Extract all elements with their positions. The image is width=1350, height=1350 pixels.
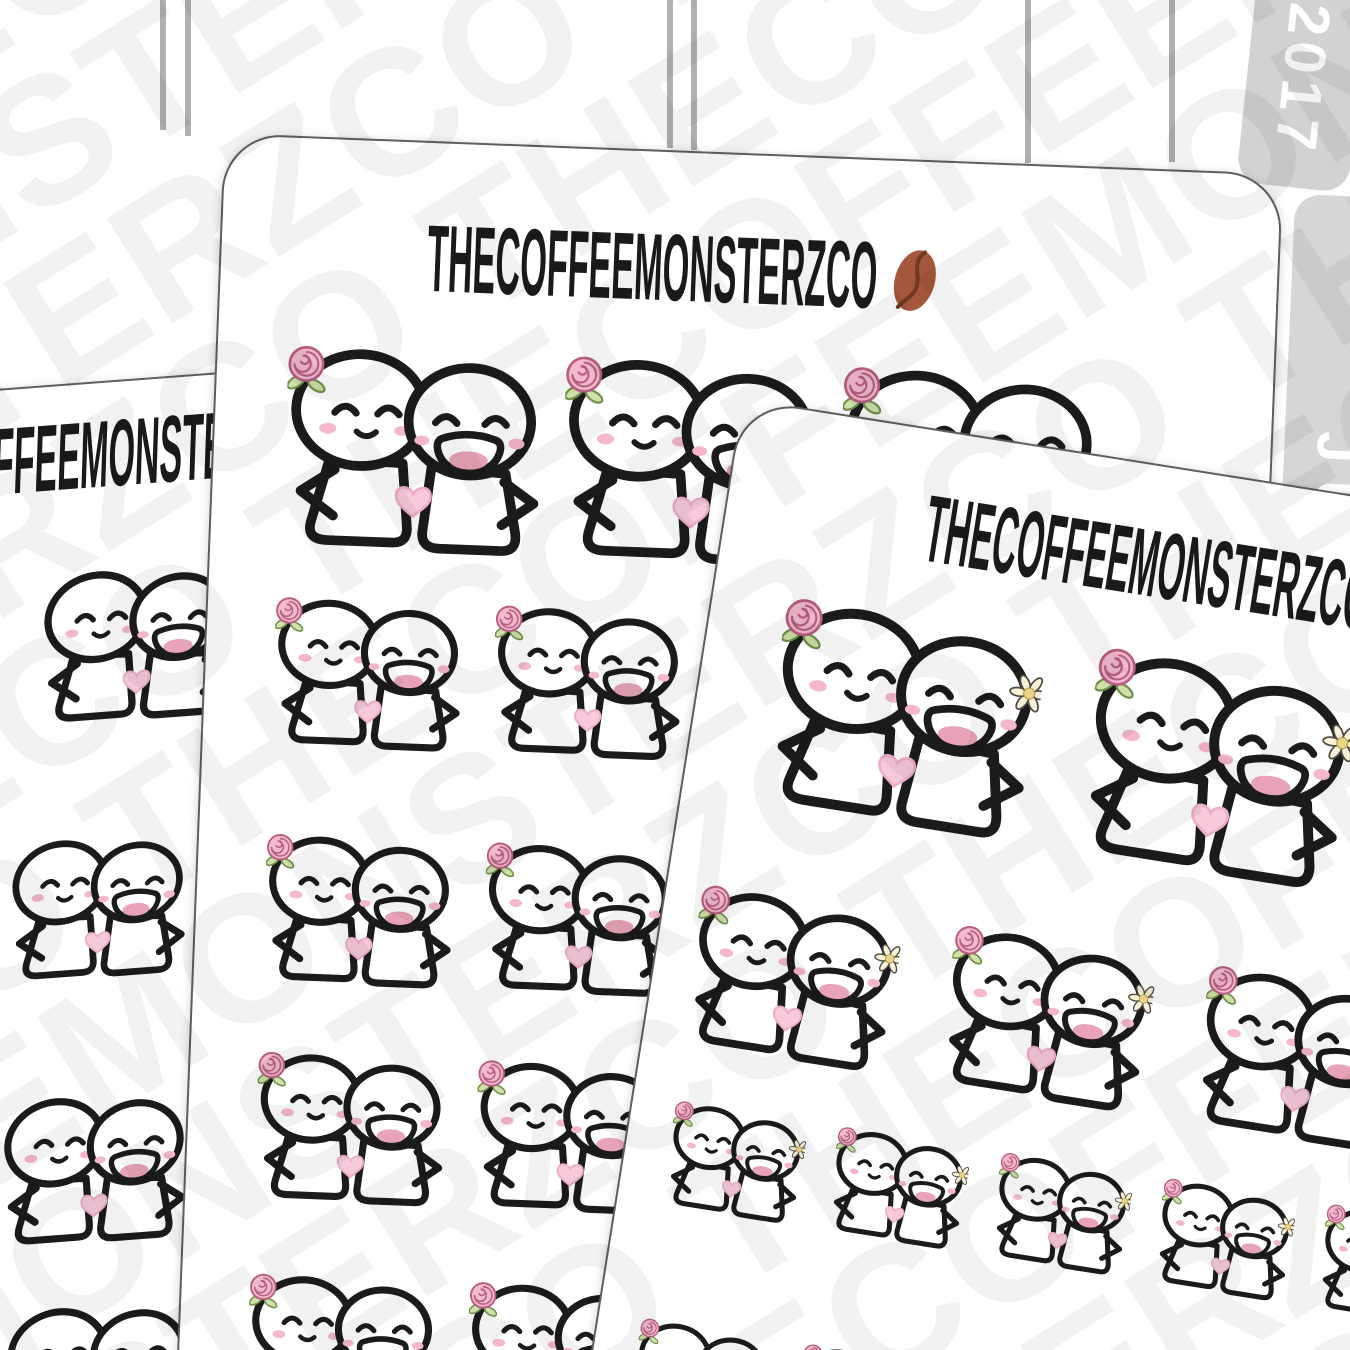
sticker-couple-slot [1311,1200,1350,1333]
right-character-head [92,1310,184,1350]
sticker-couple-slot [253,1048,449,1213]
sticker-couple [253,1048,449,1213]
sticker-couple-slot [931,920,1160,1121]
sticker-couple-slot [1185,960,1350,1161]
sticker-couple [931,920,1160,1121]
sticker-couple [659,1097,810,1230]
sticker-couple-slot [0,1084,192,1256]
page-divider-line [160,0,166,130]
sticker-couple-slot [822,1123,973,1256]
sticker-couple-slot [787,1340,938,1350]
page-divider-line [1025,0,1031,163]
sticker-couple [270,593,466,758]
sticker-couple [244,1270,440,1350]
sticker-couple [624,1314,775,1350]
planner-tab-year: 2017 [1236,0,1350,193]
page-divider-line [185,0,191,136]
planner-tab-year-label: 2017 [1262,0,1345,159]
sticker-couple [985,1148,1136,1281]
sticker-couple [1067,641,1350,901]
sticker-couple-slot [490,602,686,767]
sticker-couple-slot [270,593,466,758]
sticker-couple [754,591,1050,851]
sticker-couple-slot [1148,1174,1299,1307]
sticker-couple-slot [0,1294,195,1350]
page-divider-line [1169,0,1175,162]
laugh-mouth [359,1338,407,1350]
sticker-couple-slot [659,1097,810,1230]
brand-name-text: THECOFFEEMONSTERZCO [425,207,879,329]
sticker-couple-slot [677,879,906,1080]
product-photo-stage: 2017 JU THECOFFEEMONSTERZCO [0,0,1350,1350]
sticker-couple [1311,1200,1350,1333]
sticker-couple [1185,960,1350,1161]
sticker-couple-slot [1067,641,1350,901]
sticker-couple-slot [281,340,547,565]
sticker-couple [822,1123,973,1256]
sticker-couple [0,1084,192,1256]
sticker-couple [6,827,190,990]
sticker-couple [281,340,547,565]
sticker-couple [0,1294,195,1350]
sticker-couple-slot [985,1148,1136,1281]
sticker-couple-slot [624,1314,775,1350]
page-divider-line [691,0,697,150]
sticker-couple [787,1340,938,1350]
sticker-couple-slot [754,591,1050,851]
sticker-couple [490,602,686,767]
sticker-couple [1148,1174,1299,1307]
sticker-couple [261,830,457,995]
sticker-couple-slot [481,839,677,1004]
sticker-couple [481,839,677,1004]
rose-icon [800,1343,825,1350]
sticker-couple-slot [261,830,457,995]
page-divider-line [667,0,673,148]
sticker-couple-slot [6,827,190,990]
sticker-couple-slot [244,1270,440,1350]
sticker-couple [677,879,906,1080]
